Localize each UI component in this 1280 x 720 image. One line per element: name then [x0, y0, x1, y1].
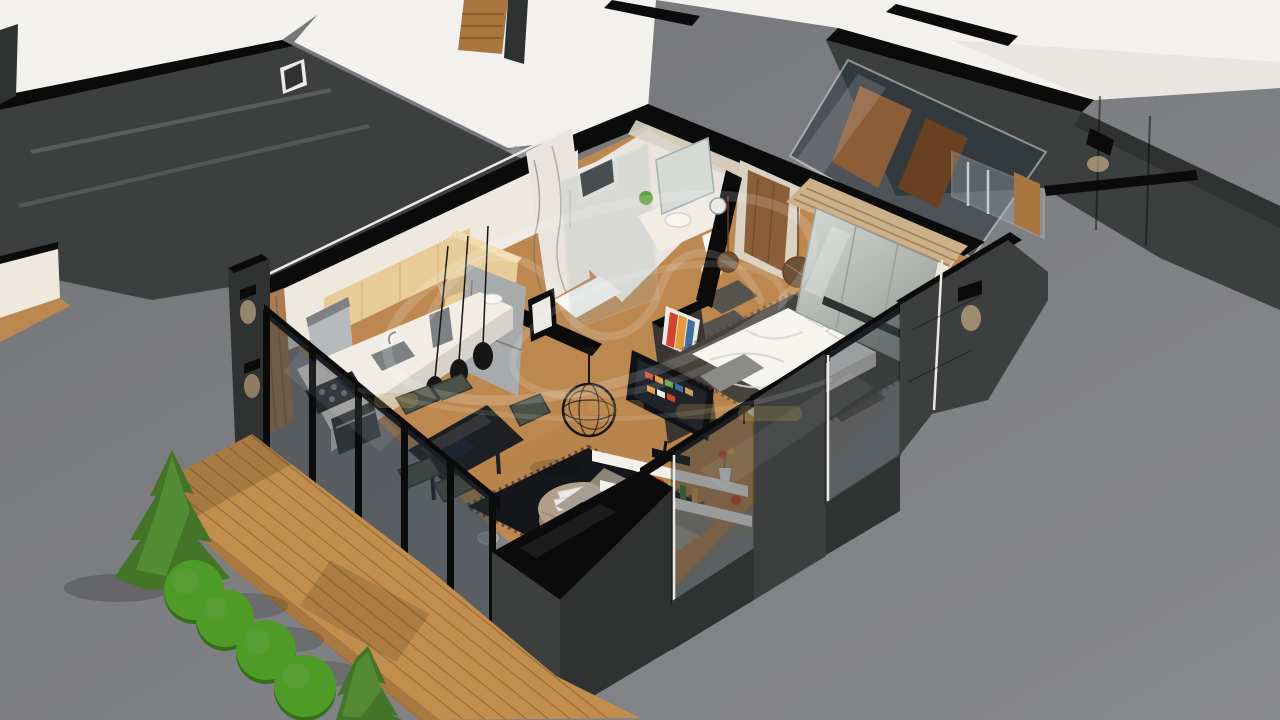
- chandelier-mount: [582, 347, 596, 353]
- teardrop-pendant-lamp: [473, 342, 493, 370]
- chandelier-shadow: [530, 459, 582, 477]
- corner-wall: [0, 24, 18, 104]
- bush-highlight: [204, 597, 228, 621]
- watermark-gold-text-blur: [676, 404, 724, 419]
- sconce-light-glow: [1087, 156, 1109, 172]
- render-canvas: [0, 0, 1280, 720]
- sconce-light-glow: [244, 374, 260, 398]
- bush-highlight: [172, 568, 198, 594]
- bush-highlight: [244, 628, 270, 654]
- window-frame: [504, 0, 528, 64]
- watermark-gold-text-blur: [588, 400, 644, 415]
- bush-highlight: [283, 663, 309, 689]
- round-bush: [274, 655, 336, 717]
- sconce-light-glow: [240, 300, 256, 324]
- watermark-gold-text-blur: [738, 406, 802, 421]
- sconce-light-glow: [961, 305, 981, 331]
- glass-frame-post: [263, 310, 270, 462]
- watermark-gold-text-blur: [374, 393, 418, 408]
- table-leg: [497, 444, 499, 474]
- floor-plan-render: [0, 0, 1280, 720]
- sink-basin: [665, 213, 691, 227]
